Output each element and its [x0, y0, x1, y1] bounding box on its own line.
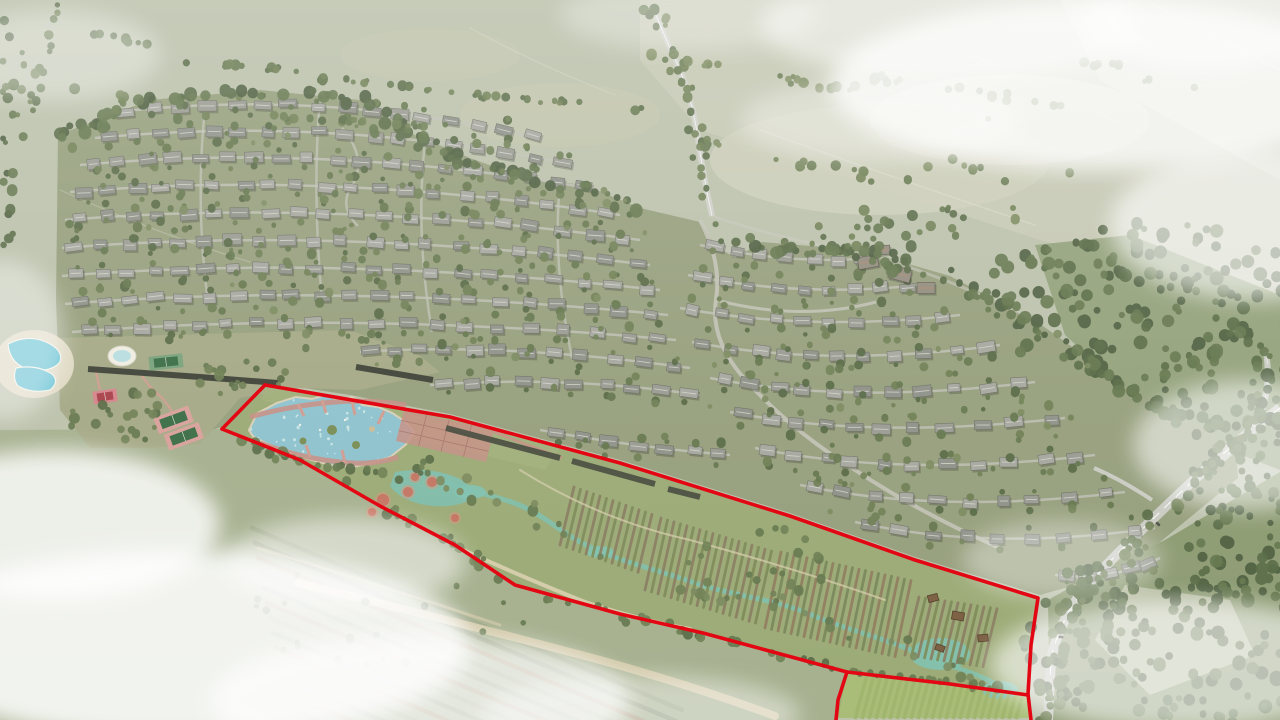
mist-patch: [740, 80, 1020, 160]
mist-patch: [962, 520, 1162, 600]
aerial-masterplan-screenshot: [0, 0, 1280, 720]
aerial-masterplan-render: [0, 0, 1280, 720]
